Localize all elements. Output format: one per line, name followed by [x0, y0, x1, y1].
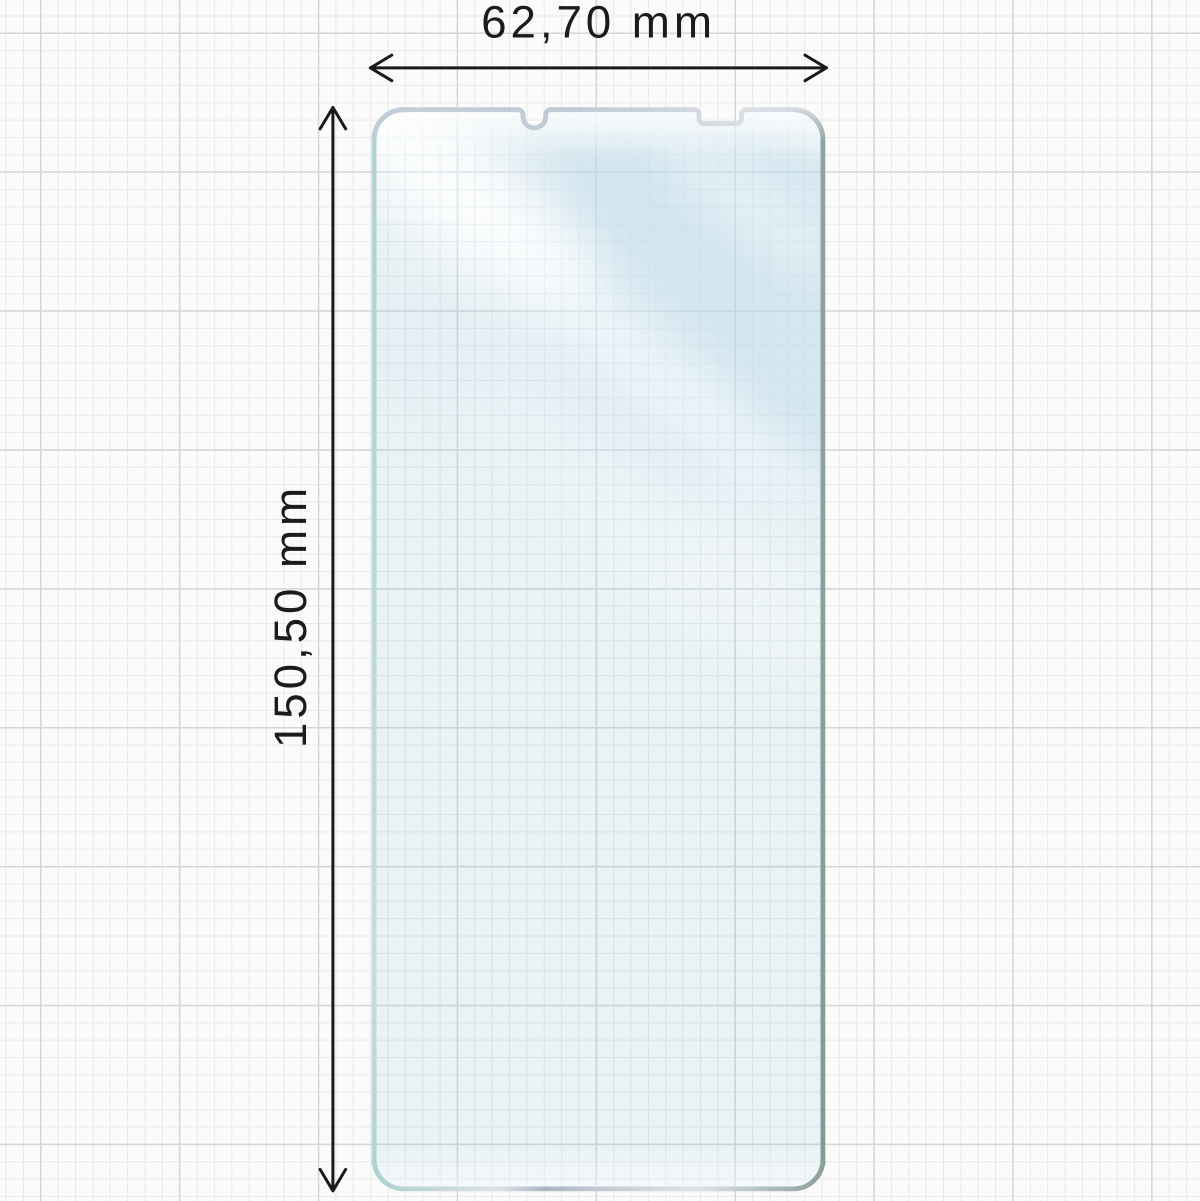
svg-text:150,50 mm: 150,50 mm [265, 484, 316, 748]
svg-text:62,70 mm: 62,70 mm [481, 0, 716, 47]
